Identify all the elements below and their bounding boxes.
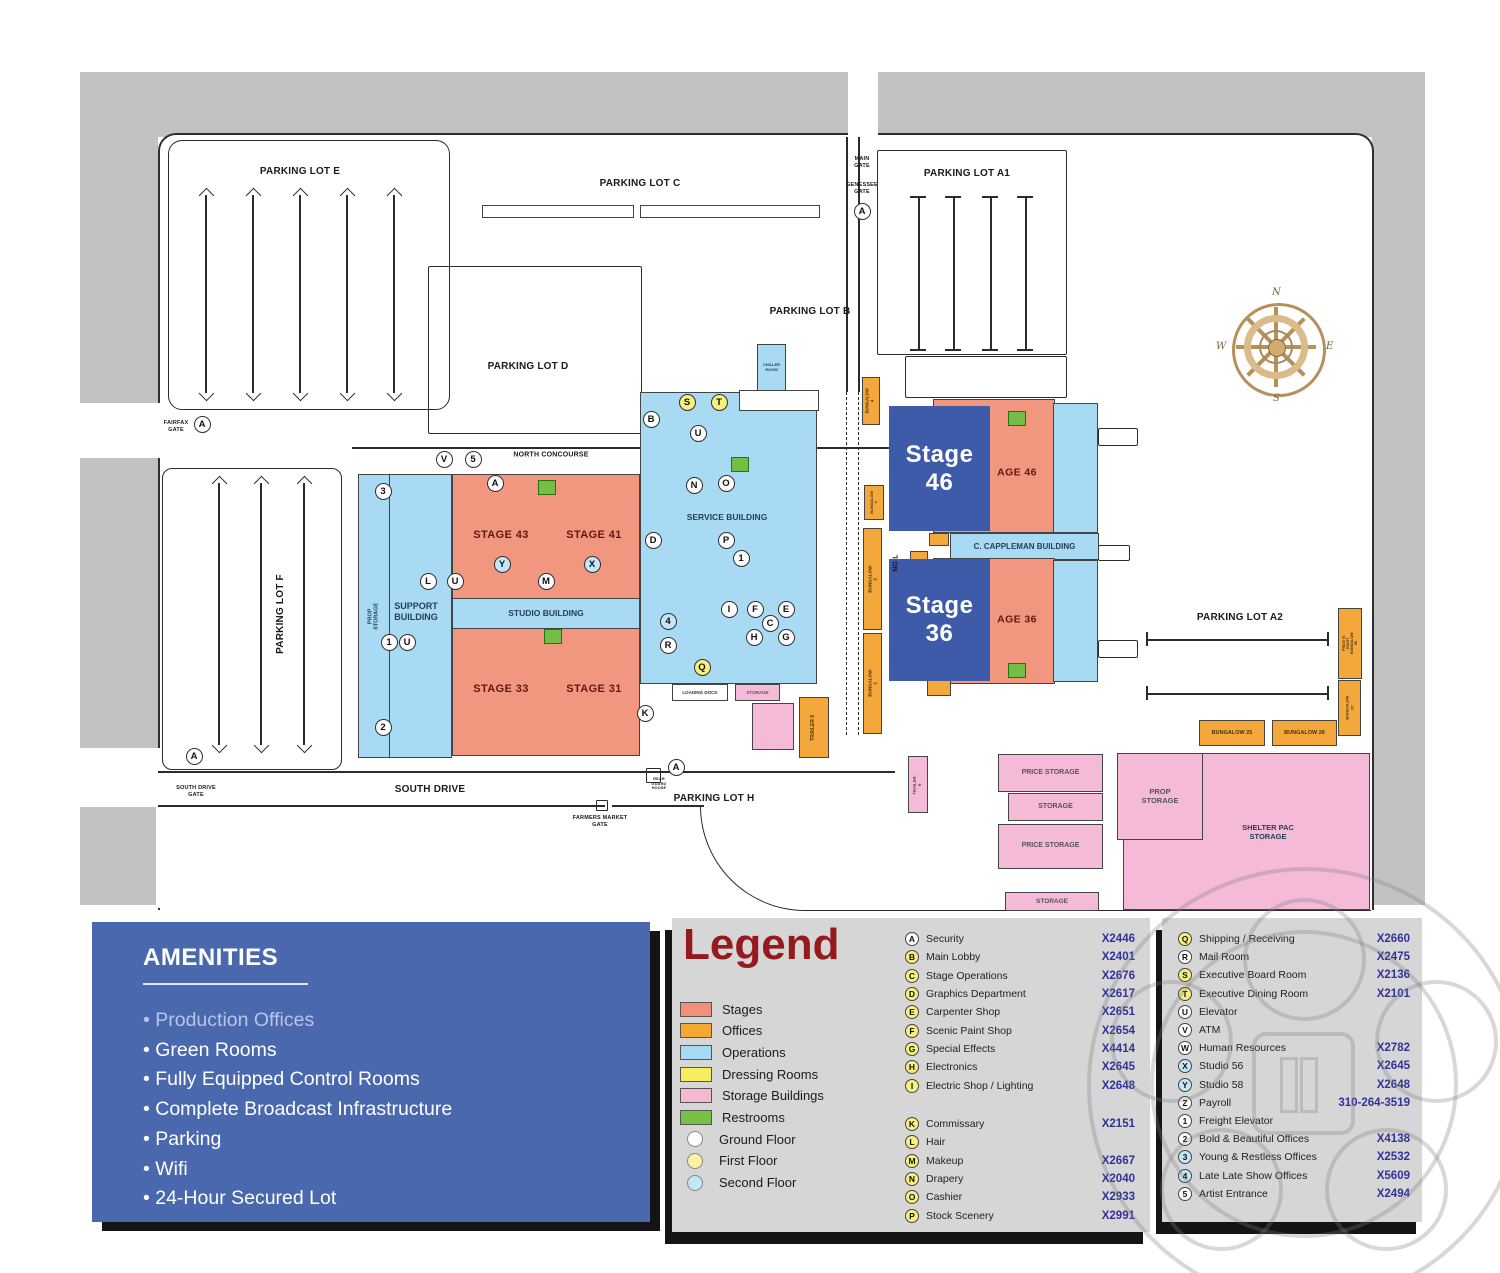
map-marker-U-8: U <box>447 573 464 590</box>
map-marker-N-18: N <box>686 477 703 494</box>
lot-a1-row-line-2 <box>990 196 992 349</box>
directory-label: Scenic Paint Shop <box>926 1025 1102 1037</box>
directory-row: XStudio 56X2645 <box>1178 1058 1410 1074</box>
directory-row: KCommissaryX2151 <box>905 1116 1135 1132</box>
map-road-line-8 <box>846 392 847 735</box>
legend-swatch-ops <box>680 1045 712 1060</box>
directory-row: ASecurityX2446 <box>905 931 1135 947</box>
directory-marker-Z: Z <box>1178 1096 1192 1110</box>
bungalow-2-label: BUNGALOW 2 <box>867 566 877 593</box>
loading-dock: LOADING DOCK <box>672 684 728 701</box>
directory-extension: X2494 <box>1377 1188 1410 1200</box>
map-marker-R-30: R <box>660 637 677 654</box>
directory-row: RMail RoomX2475 <box>1178 949 1410 965</box>
directory-extension: X2782 <box>1377 1042 1410 1054</box>
directory-extension: X2446 <box>1102 933 1135 945</box>
directory-label: Bold & Beautiful Offices <box>1199 1133 1377 1145</box>
trailer-5-label: TRAILER 5 <box>811 715 817 741</box>
directory-label: Shipping / Receiving <box>1199 933 1377 945</box>
amenity-item: • Production Offices <box>143 1009 314 1032</box>
extensions-panel: QShipping / ReceivingX2660RMail RoomX247… <box>1162 918 1422 1222</box>
directory-extension: 310-264-3519 <box>1338 1097 1410 1109</box>
lot-a2-row-cap-r0 <box>1327 632 1329 646</box>
map-marker-3-10: 3 <box>375 483 392 500</box>
legend-row-label: Restrooms <box>722 1110 785 1125</box>
directory-label: Elevator <box>1199 1006 1410 1018</box>
map-marker-I-23: I <box>721 601 738 618</box>
loading-dock-label: LOADING DOCK <box>682 690 717 695</box>
storage-2-label: STORAGE <box>1036 898 1068 905</box>
price-storage-1: PRICE STORAGE <box>998 754 1103 792</box>
directory-label: Studio 56 <box>1199 1060 1377 1072</box>
directory-row: WHuman ResourcesX2782 <box>1178 1040 1410 1056</box>
directory-marker-K: K <box>905 1117 919 1131</box>
prop-storage-strip: PROP STORAGE <box>358 474 390 758</box>
parking-lot-g-partial-label: NG L <box>893 554 902 572</box>
directory-label: Commissary <box>926 1118 1102 1130</box>
legend-row: Offices <box>680 1022 910 1040</box>
storage-dock-label: STORAGE <box>746 690 768 695</box>
compass-south-label: S <box>1273 393 1280 404</box>
lot-a1-row-cap-b3 <box>1017 349 1033 351</box>
price-storage-2: PRICE STORAGE <box>998 824 1103 869</box>
bungalow-1: BUNGALOW 1 <box>863 633 882 734</box>
directory-marker-O: O <box>905 1190 919 1204</box>
lot-d-label: PARKING LOT D <box>488 361 569 374</box>
legend-floor-circle-c-g <box>687 1131 703 1147</box>
directory-extension: X2475 <box>1377 951 1410 963</box>
amenities-panel: AMENITIES • Production Offices• Green Ro… <box>92 922 650 1222</box>
legend-floor-circle-c-f <box>687 1153 703 1169</box>
map-marker-Q-31: Q <box>694 659 711 676</box>
amenity-item: • 24-Hour Secured Lot <box>143 1187 336 1210</box>
directory-marker-P: P <box>905 1209 919 1223</box>
directory-marker-4: 4 <box>1178 1169 1192 1183</box>
directory-extension: X2660 <box>1377 933 1410 945</box>
legend-row-label: First Floor <box>719 1153 778 1168</box>
stage-46-ops-strip <box>1053 403 1098 533</box>
directory-label: Drapery <box>926 1173 1102 1185</box>
map-marker-V-2: V <box>436 451 453 468</box>
lot-f-arrows-line-0 <box>218 483 220 745</box>
lot-f-arrows-line-2 <box>303 483 305 745</box>
compass-north-label: N <box>1272 287 1281 298</box>
directory-row: 4Late Late Show OfficesX5609 <box>1178 1168 1410 1184</box>
lot-f-label: PARKING LOT F <box>275 574 288 654</box>
directory-extension: X2532 <box>1377 1151 1410 1163</box>
amenity-item: • Fully Equipped Control Rooms <box>143 1068 420 1091</box>
directory-row: YStudio 58X2648 <box>1178 1077 1410 1093</box>
price-is-right-bungalow-28: PRICE IS RIGHT BUNGALOW 28 <box>1338 608 1362 679</box>
directory-extension: X4414 <box>1102 1043 1135 1055</box>
service-building-label: SERVICE BUILDING <box>687 512 768 522</box>
bungalow-3: BUNGALOW 3 <box>864 485 884 520</box>
directory-label: Main Lobby <box>926 951 1102 963</box>
lot-c-divider-2 <box>640 205 820 218</box>
directory-extension: X2151 <box>1102 1118 1135 1130</box>
map-marker-A-1: A <box>854 203 871 220</box>
trailer-5: TRAILER 5 <box>799 697 829 758</box>
directory-label: Young & Restless Offices <box>1199 1151 1377 1163</box>
cappleman-office-a <box>929 533 949 546</box>
directory-marker-Y: Y <box>1178 1078 1192 1092</box>
directory-extension: X2676 <box>1102 970 1135 982</box>
lot-a1-row-cap-b1 <box>945 349 961 351</box>
directory-extension: X2648 <box>1377 1079 1410 1091</box>
amenity-item: • Wifi <box>143 1158 188 1181</box>
stage-36-ops-strip <box>1053 560 1098 682</box>
map-marker-F-24: F <box>747 601 764 618</box>
directory-extension: X2991 <box>1102 1210 1135 1222</box>
fairfax-gate-label: FAIRFAX GATE <box>164 420 189 434</box>
map-marker-P-21: P <box>718 532 735 549</box>
directory-row: 1Freight Elevator <box>1178 1113 1410 1129</box>
bungalow-26: BUNGALOW 26 <box>1272 720 1337 746</box>
farmers-market-gate-label: FARMERS MARKET GATE <box>573 815 628 829</box>
directory-extension: X2645 <box>1377 1060 1410 1072</box>
map-marker-Y-5: Y <box>494 556 511 573</box>
studio-building: STUDIO BUILDING <box>452 598 640 630</box>
lot-a1-row-line-1 <box>953 196 955 349</box>
directory-row: ZPayroll310-264-3519 <box>1178 1095 1410 1111</box>
lot-h-label: PARKING LOT H <box>674 793 755 806</box>
directory-extension: X2654 <box>1102 1025 1135 1037</box>
legend-row: Restrooms <box>680 1109 910 1127</box>
shelter-pac-storage-label: SHELTER PAC STORAGE <box>1242 823 1294 841</box>
directory-label: Carpenter Shop <box>926 1006 1102 1018</box>
directory-label: Hair <box>926 1136 1135 1148</box>
directory-marker-E: E <box>905 1005 919 1019</box>
map-marker-B-14: B <box>643 411 660 428</box>
map-marker-4-29: 4 <box>660 613 677 630</box>
directory-extension: X2667 <box>1102 1155 1135 1167</box>
compass-west-label: W <box>1216 341 1226 352</box>
map-marker-X-6: X <box>584 556 601 573</box>
price-storage-1-label: PRICE STORAGE <box>1022 769 1080 777</box>
lot-a2-row-line-1 <box>1146 693 1327 695</box>
cappleman-building-label: C. CAPPLEMAN BUILDING <box>974 542 1076 551</box>
cappleman-dock <box>1098 545 1130 561</box>
directory-row: UElevator <box>1178 1004 1410 1020</box>
directory-row: VATM <box>1178 1022 1410 1038</box>
directory-row: SExecutive Board RoomX2136 <box>1178 967 1410 983</box>
map-marker-H-27: H <box>746 629 763 646</box>
directory-row: QShipping / ReceivingX2660 <box>1178 931 1410 947</box>
map-marker-A-34: A <box>186 748 203 765</box>
bungalow-27: BUNGALOW 27 <box>1338 680 1361 736</box>
legend-row-label: Offices <box>722 1023 762 1038</box>
north-concourse-label: NORTH CONCOURSE <box>513 452 588 461</box>
directory-row: PStock SceneryX2991 <box>905 1208 1135 1224</box>
rear-guard-house-label: REAR GUARD HOUSE <box>652 777 667 791</box>
directory-label: Freight Elevator <box>1199 1115 1410 1127</box>
lot-f-arrows-line-1 <box>260 483 262 745</box>
directory-row: DGraphics DepartmentX2617 <box>905 986 1135 1002</box>
legend-row: Stages <box>680 1000 910 1018</box>
legend-panel: Legend StagesOfficesOperationsDressing R… <box>672 918 1150 1232</box>
bungalow-27-label: BUNGALOW 27 <box>1345 696 1354 720</box>
lot-e-label: PARKING LOT E <box>260 166 340 179</box>
legend-row: Dressing Rooms <box>680 1065 910 1083</box>
map-marker-A-33: A <box>668 759 685 776</box>
legend-row-label: Storage Buildings <box>722 1088 824 1103</box>
directory-label: Graphics Department <box>926 988 1102 1000</box>
legend-row-label: Dressing Rooms <box>722 1067 818 1082</box>
lot-b-label: PARKING LOT B <box>770 306 851 319</box>
lot-e-arrows-line-2 <box>299 195 301 393</box>
legend-swatch-stage <box>680 1002 712 1017</box>
directory-label: Security <box>926 933 1102 945</box>
directory-label: Executive Board Room <box>1199 969 1377 981</box>
map-road-line-9 <box>858 392 859 735</box>
directory-label: Payroll <box>1199 1097 1338 1109</box>
map-road-line-1 <box>158 771 895 773</box>
lot-e-outline <box>168 140 450 410</box>
stage46-yard-outline <box>905 356 1067 398</box>
chiller-room-label: CHILLER ROOM <box>763 363 780 372</box>
directory-row: GSpecial EffectsX4414 <box>905 1041 1135 1057</box>
directory-row: NDraperyX2040 <box>905 1171 1135 1187</box>
legend-row: Second Floor <box>680 1174 910 1192</box>
bungalow-26-label: BUNGALOW 26 <box>1284 730 1325 736</box>
legend-row: First Floor <box>680 1152 910 1170</box>
directory-marker-N: N <box>905 1172 919 1186</box>
legend-row: Operations <box>680 1043 910 1061</box>
directory-marker-3: 3 <box>1178 1150 1192 1164</box>
legend-swatch-pink <box>680 1088 712 1103</box>
bungalow-4: BUNGALOW 4 <box>862 377 880 425</box>
directory-marker-B: B <box>905 950 919 964</box>
directory-label: Stock Scenery <box>926 1210 1102 1222</box>
compass-rose: N S E W <box>1232 303 1320 391</box>
map-road-line-7 <box>858 137 860 392</box>
bungalow-25: BUNGALOW 25 <box>1199 720 1265 746</box>
directory-marker-T: T <box>1178 987 1192 1001</box>
directory-extension: X2645 <box>1102 1061 1135 1073</box>
bungalow-2: BUNGALOW 2 <box>863 528 882 630</box>
stage-36-overlay: Stage 36 <box>889 559 990 681</box>
legend-row-label: Ground Floor <box>719 1132 796 1147</box>
directory-label: Artist Entrance <box>1199 1188 1377 1200</box>
map-road-line-6 <box>846 137 848 392</box>
service-notch <box>739 390 819 411</box>
map-marker-2-13: 2 <box>375 719 392 736</box>
directory-row: OCashierX2933 <box>905 1189 1135 1205</box>
support-building-label: SUPPORT BUILDING <box>394 601 438 623</box>
directory-marker-2: 2 <box>1178 1132 1192 1146</box>
directory-label: Executive Dining Room <box>1199 988 1377 1000</box>
directory-label: ATM <box>1199 1024 1410 1036</box>
lot-e-arrows-line-0 <box>205 195 207 393</box>
directory-marker-H: H <box>905 1060 919 1074</box>
directory-marker-F: F <box>905 1024 919 1038</box>
lot-d-outline <box>428 266 642 434</box>
map-road-line-2 <box>158 805 605 807</box>
studio-building-label: STUDIO BUILDING <box>508 609 584 619</box>
directory-extension: X2040 <box>1102 1173 1135 1185</box>
amenities-title: AMENITIES <box>143 944 278 972</box>
lot-a1-row-cap-t0 <box>910 196 926 198</box>
directory-label: Cashier <box>926 1191 1102 1203</box>
directory-marker-5: 5 <box>1178 1187 1192 1201</box>
directory-label: Studio 58 <box>1199 1079 1377 1091</box>
lot-c-label: PARKING LOT C <box>600 178 681 191</box>
stage-43-label: STAGE 43 <box>473 529 529 543</box>
stage36-dock-a <box>1098 640 1138 658</box>
lot-a1-row-line-3 <box>1025 196 1027 349</box>
directory-marker-A: A <box>905 932 919 946</box>
bungalow-1-label: BUNGALOW 1 <box>867 670 877 697</box>
directory-label: Electronics <box>926 1061 1102 1073</box>
lot-a1-row-cap-b2 <box>982 349 998 351</box>
directory-marker-D: D <box>905 987 919 1001</box>
directory-extension: X2933 <box>1102 1191 1135 1203</box>
directory-marker-R: R <box>1178 950 1192 964</box>
directory-row: 5Artist EntranceX2494 <box>1178 1186 1410 1202</box>
storage-1-label: STORAGE <box>1038 803 1073 811</box>
stage-31-label: STAGE 31 <box>566 683 622 697</box>
lot-a2-label: PARKING LOT A2 <box>1197 612 1283 625</box>
directory-extension: X2136 <box>1377 969 1410 981</box>
chiller-room: CHILLER ROOM <box>757 344 786 391</box>
directory-label: Special Effects <box>926 1043 1102 1055</box>
map-marker-E-25: E <box>778 601 795 618</box>
storage-dock: STORAGE <box>735 684 780 701</box>
map-marker-U-17: U <box>690 425 707 442</box>
directory-marker-M: M <box>905 1154 919 1168</box>
directory-extension: X5609 <box>1377 1170 1410 1182</box>
directory-marker-Q: Q <box>1178 932 1192 946</box>
trailer-6: TRAILER-6 <box>908 756 928 813</box>
directory-row: 3Young & Restless OfficesX2532 <box>1178 1149 1410 1165</box>
studio-lot-map-page: SUPPORT BUILDINGPROP STORAGESTUDIO BUILD… <box>0 0 1500 1273</box>
bungalow-3-label: BUNGALOW 3 <box>870 491 879 514</box>
directory-row: BMain LobbyX2401 <box>905 949 1135 965</box>
lot-a2-row-cap-r1 <box>1327 686 1329 700</box>
legend-floor-circle-c-s <box>687 1175 703 1191</box>
directory-row: CStage OperationsX2676 <box>905 968 1135 984</box>
directory-marker-L: L <box>905 1135 919 1149</box>
lot-f-outline <box>162 468 342 770</box>
genessee-gate-label: GENESSEE GATE <box>846 182 878 196</box>
prop-storage-label: PROP STORAGE <box>1142 788 1179 805</box>
map-marker-L-9: L <box>420 573 437 590</box>
compass-hub <box>1268 339 1286 357</box>
directory-row: TExecutive Dining RoomX2101 <box>1178 986 1410 1002</box>
directory-label: Electric Shop / Lighting <box>926 1080 1102 1092</box>
directory-label: Late Late Show Offices <box>1199 1170 1377 1182</box>
map-marker-1-22: 1 <box>733 550 750 567</box>
legend-swatch-office <box>680 1023 712 1038</box>
restroom-4 <box>1008 663 1026 678</box>
map-marker-5-3: 5 <box>465 451 482 468</box>
legend-row-label: Second Floor <box>719 1175 796 1190</box>
map-marker-G-28: G <box>778 629 795 646</box>
bungalow-4-label: BUNGALOW 4 <box>866 388 876 413</box>
lot-a2-row-cap-l0 <box>1146 632 1148 646</box>
lot-a2-row-line-0 <box>1146 639 1327 641</box>
directory-extension: X2617 <box>1102 988 1135 1000</box>
directory-label: Makeup <box>926 1155 1102 1167</box>
price-storage-2-label: PRICE STORAGE <box>1022 842 1080 850</box>
stage-46-overlay-label: Stage 46 <box>889 441 990 496</box>
legend-row: Ground Floor <box>680 1130 910 1148</box>
amenity-item: • Parking <box>143 1128 221 1151</box>
storage-1: STORAGE <box>1008 793 1103 821</box>
directory-marker-G: G <box>905 1042 919 1056</box>
lot-a1-row-cap-b0 <box>910 349 926 351</box>
lot-a2-row-cap-l1 <box>1146 686 1148 700</box>
south-drive-label: SOUTH DRIVE <box>395 784 466 797</box>
directory-row: MMakeupX2667 <box>905 1153 1135 1169</box>
lot-a1-label: PARKING LOT A1 <box>924 168 1010 181</box>
storage-small <box>752 703 794 750</box>
directory-row: IElectric Shop / LightingX2648 <box>905 1078 1135 1094</box>
directory-row: ECarpenter ShopX2651 <box>905 1004 1135 1020</box>
lot-c-divider-1 <box>482 205 634 218</box>
directory-extension: X2648 <box>1102 1080 1135 1092</box>
directory-marker-C: C <box>905 969 919 983</box>
main-gate-label: MAIN GATE <box>854 156 870 170</box>
directory-marker-I: I <box>905 1079 919 1093</box>
lot-a1-row-cap-t1 <box>945 196 961 198</box>
stage-41-label: STAGE 41 <box>566 529 622 543</box>
legend-swatch-green <box>680 1110 712 1125</box>
prop-storage-strip-label: PROP STORAGE <box>368 601 381 631</box>
directory-extension: X4138 <box>1377 1133 1410 1145</box>
lot-e-arrows-line-1 <box>252 195 254 393</box>
directory-label: Mail Room <box>1199 951 1377 963</box>
restroom-2 <box>731 457 749 472</box>
compass-east-label: E <box>1326 341 1333 352</box>
map-marker-M-7: M <box>538 573 555 590</box>
directory-row: HElectronicsX2645 <box>905 1059 1135 1075</box>
storage-2: STORAGE <box>1005 892 1099 911</box>
directory-row: FScenic Paint ShopX2654 <box>905 1023 1135 1039</box>
directory-extension: X2101 <box>1377 988 1410 1000</box>
directory-extension: X2651 <box>1102 1006 1135 1018</box>
directory-label: Stage Operations <box>926 970 1102 982</box>
directory-label: Human Resources <box>1199 1042 1377 1054</box>
restroom-0 <box>538 480 556 495</box>
restroom-3 <box>1008 411 1026 426</box>
lot-a1-outline <box>877 150 1067 355</box>
stage-36-under-label: AGE 36 <box>997 613 1037 626</box>
bungalow-25-label: BUNGALOW 25 <box>1212 730 1253 736</box>
map-marker-K-32: K <box>637 705 654 722</box>
directory-marker-U: U <box>1178 1005 1192 1019</box>
map-marker-O-19: O <box>718 475 735 492</box>
map-marker-D-20: D <box>645 532 662 549</box>
trailer-6-label: TRAILER-6 <box>913 775 923 795</box>
cappleman-building: C. CAPPLEMAN BUILDING <box>950 533 1099 560</box>
lot-a1-row-line-0 <box>918 196 920 349</box>
stage-46-overlay: Stage 46 <box>889 406 990 531</box>
prop-storage: PROP STORAGE <box>1117 753 1203 840</box>
price-is-right-bungalow-28-label: PRICE IS RIGHT BUNGALOW 28 <box>1342 633 1359 655</box>
lot-e-arrows-line-4 <box>393 195 395 393</box>
lot-e-arrows-line-3 <box>346 195 348 393</box>
directory-row: LHair <box>905 1134 1135 1150</box>
stage-33-label: STAGE 33 <box>473 683 529 697</box>
legend-row-label: Operations <box>722 1045 786 1060</box>
map-marker-A-0: A <box>194 416 211 433</box>
lot-a1-row-cap-t2 <box>982 196 998 198</box>
amenity-item: • Complete Broadcast Infrastructure <box>143 1098 452 1121</box>
stage-36-overlay-label: Stage 36 <box>889 592 990 647</box>
stage-36-office-tab <box>927 680 951 696</box>
directory-marker-X: X <box>1178 1059 1192 1073</box>
